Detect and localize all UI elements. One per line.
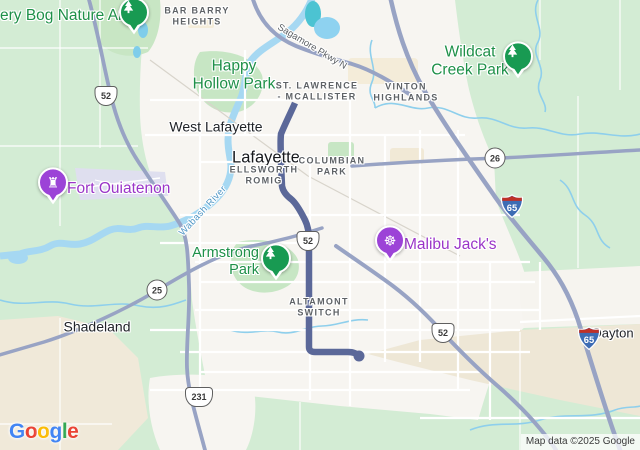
label-fort-ouiatenon[interactable]: Fort Ouiatenon (67, 180, 170, 198)
label-bar-barry-heights: BAR BARRY HEIGHTS (164, 5, 229, 26)
map-attribution: Map data ©2025 Google (521, 434, 640, 450)
label-vinton-highlands: VINTON HIGHLANDS (373, 81, 438, 102)
svg-text:65: 65 (507, 203, 517, 213)
google-logo[interactable]: Google (9, 420, 78, 444)
label-shadeland: Shadeland (64, 319, 131, 336)
castle-icon: ♜ (47, 175, 60, 189)
sr26-shield: 26 (485, 148, 506, 169)
label-ellsworth-romig: ELLSWORTH ROMIG (230, 164, 299, 185)
fort-ouiatenon-pin[interactable]: ♜ (38, 167, 68, 197)
label-altamont-switch: ALTAMONT SWITCH (289, 296, 349, 317)
label-columbian-park: COLUMBIAN PARK (299, 155, 366, 176)
sr25-shield: 25 (147, 280, 168, 301)
label-malibu-jacks[interactable]: Malibu Jack's (404, 236, 497, 254)
logo-letter: e (67, 420, 78, 443)
armstrong-park-pin[interactable] (261, 243, 291, 273)
logo-letter: G (9, 420, 25, 443)
label-west-lafayette: West Lafayette (169, 119, 262, 136)
label-happy-hollow-park[interactable]: Happy Hollow Park (193, 58, 276, 95)
route-endpoint[interactable] (354, 351, 365, 362)
malibu-jacks-pin[interactable]: ☸ (375, 225, 405, 255)
logo-letter: o (37, 420, 49, 443)
logo-letter: o (25, 420, 37, 443)
svg-text:65: 65 (584, 335, 594, 345)
map-svg (0, 0, 640, 450)
label-st-lawrence-mcallister: ST. LAWRENCE - MCALLISTER (276, 80, 359, 101)
label-armstrong-park[interactable]: Armstrong Park (192, 245, 259, 279)
logo-letter: g (50, 420, 62, 443)
us231-shield: 231 (185, 387, 213, 407)
wildcat-creek-park-pin[interactable] (503, 41, 533, 71)
map-canvas[interactable]: ery Bog Nature Area BAR BARRY HEIGHTS Sa… (0, 0, 640, 450)
ferris-wheel-icon: ☸ (384, 233, 397, 247)
label-wildcat-creek-park[interactable]: Wildcat Creek Park (431, 44, 509, 81)
